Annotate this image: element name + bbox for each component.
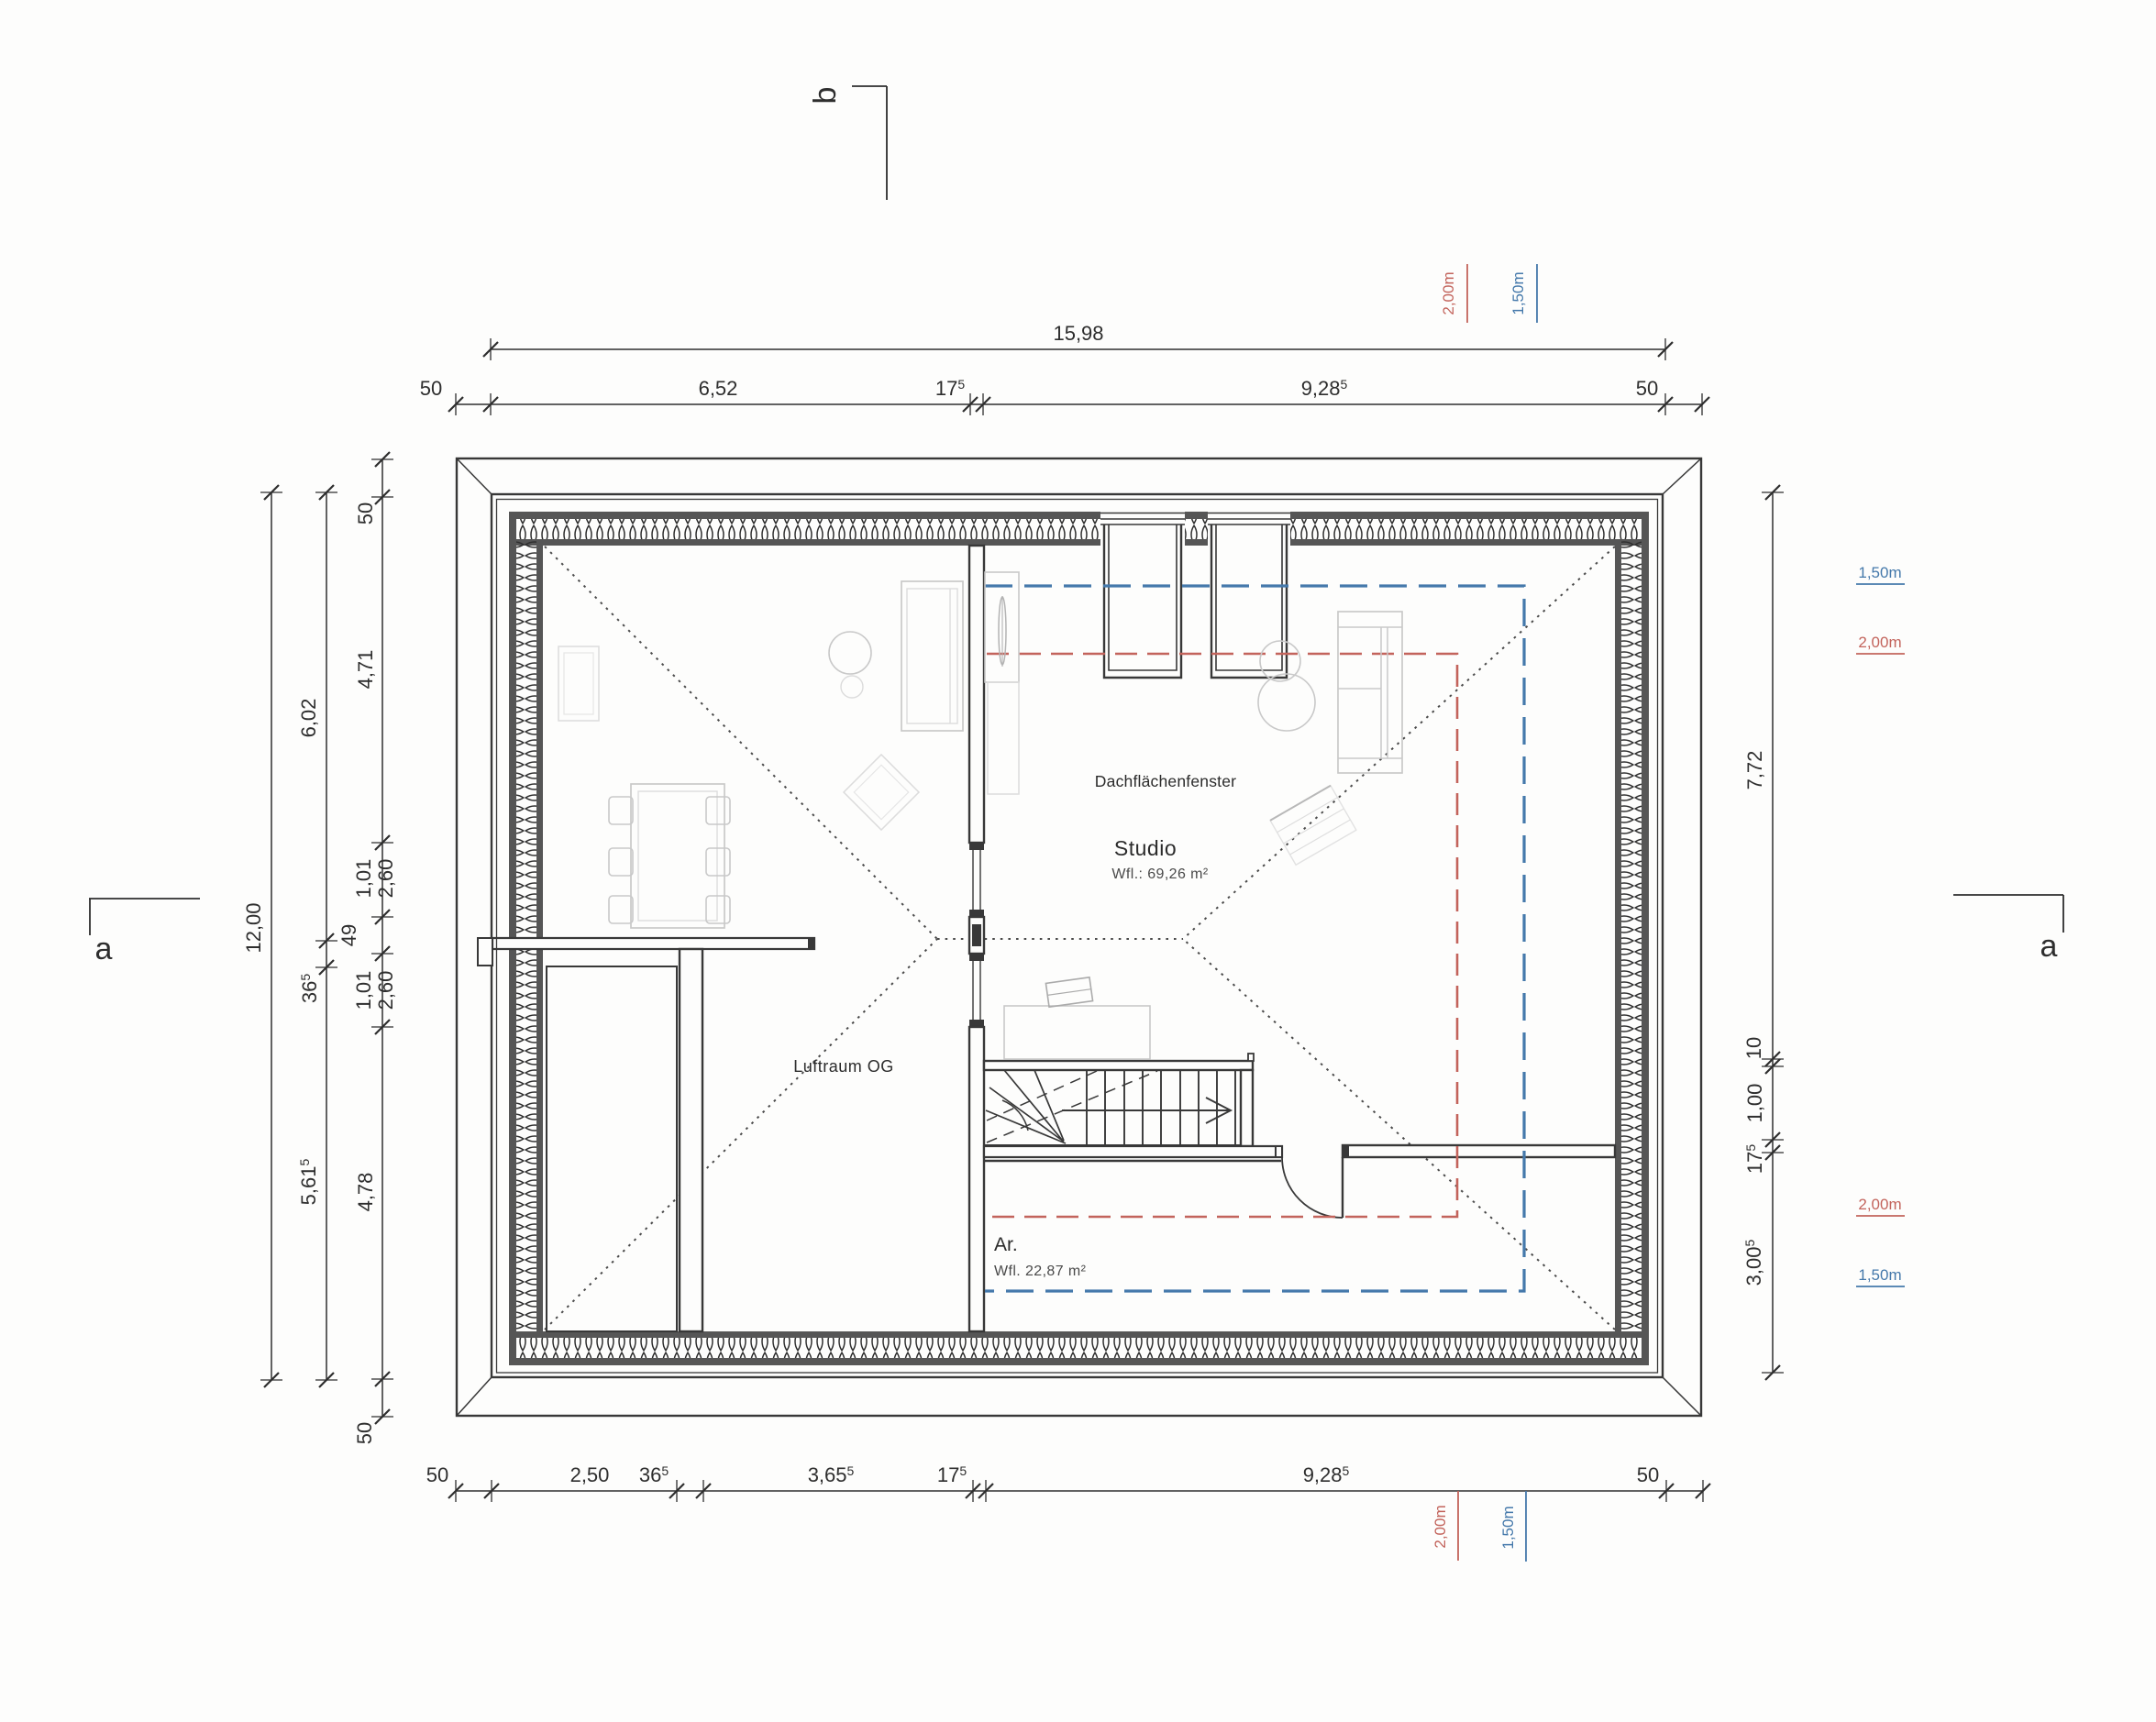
- svg-text:2,50: 2,50: [570, 1463, 610, 1486]
- svg-text:15,98: 15,98: [1053, 322, 1103, 345]
- svg-text:1,50m: 1,50m: [1509, 271, 1527, 315]
- svg-text:2,60: 2,60: [374, 971, 397, 1010]
- svg-text:50: 50: [354, 502, 377, 524]
- svg-text:2,60: 2,60: [374, 859, 397, 899]
- svg-text:2,00m: 2,00m: [1858, 1196, 1901, 1213]
- svg-text:a: a: [95, 932, 113, 966]
- svg-text:b: b: [808, 87, 843, 105]
- svg-text:2,00m: 2,00m: [1432, 1505, 1449, 1548]
- svg-text:6,02: 6,02: [297, 699, 320, 738]
- svg-text:49: 49: [337, 924, 360, 946]
- svg-text:12,00: 12,00: [242, 902, 265, 953]
- svg-text:4,78: 4,78: [354, 1173, 377, 1212]
- svg-text:4,71: 4,71: [354, 650, 377, 690]
- svg-text:Dachflächenfenster: Dachflächenfenster: [1095, 772, 1236, 790]
- svg-text:Studio: Studio: [1114, 836, 1177, 860]
- svg-text:1,50m: 1,50m: [1858, 564, 1901, 581]
- svg-text:Ar.: Ar.: [994, 1234, 1018, 1255]
- svg-text:1,50m: 1,50m: [1499, 1506, 1517, 1549]
- svg-text:Wfl. 22,87 m²: Wfl. 22,87 m²: [994, 1264, 1087, 1279]
- svg-text:10: 10: [1742, 1037, 1765, 1059]
- svg-text:6,52: 6,52: [699, 377, 738, 400]
- svg-text:1,01: 1,01: [352, 971, 375, 1010]
- svg-text:50: 50: [426, 1463, 448, 1486]
- svg-text:7,72: 7,72: [1743, 751, 1766, 790]
- svg-text:1,01: 1,01: [352, 859, 375, 899]
- svg-text:Wfl.: 69,26 m²: Wfl.: 69,26 m²: [1111, 867, 1208, 882]
- svg-text:1,00: 1,00: [1743, 1084, 1766, 1123]
- svg-text:Luftraum OG: Luftraum OG: [793, 1057, 894, 1076]
- svg-text:50: 50: [1636, 377, 1658, 400]
- svg-text:50: 50: [353, 1422, 376, 1444]
- svg-text:50: 50: [1637, 1463, 1659, 1486]
- svg-text:50: 50: [420, 377, 442, 400]
- svg-text:a: a: [2040, 929, 2058, 964]
- svg-text:1,50m: 1,50m: [1858, 1266, 1901, 1284]
- svg-text:2,00m: 2,00m: [1440, 271, 1457, 315]
- svg-text:2,00m: 2,00m: [1858, 634, 1901, 651]
